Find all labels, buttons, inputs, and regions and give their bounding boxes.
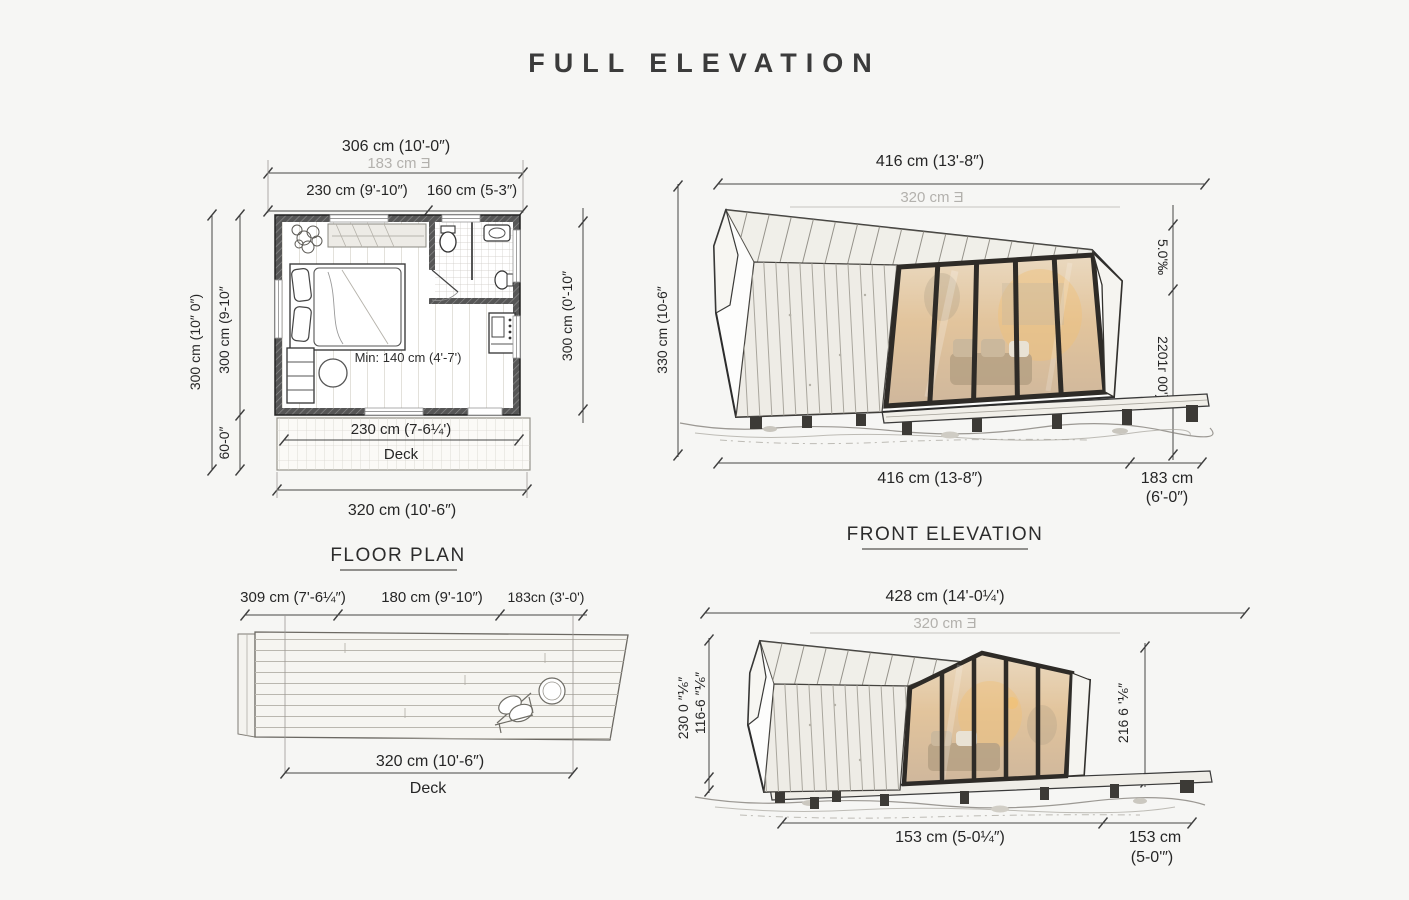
floorplan-dim-right: 300 cm (0'-10″ bbox=[559, 271, 575, 361]
floor-plan-body: Min: 140 cm (4'-7') bbox=[275, 215, 520, 415]
floorplan-deck-label: Deck bbox=[384, 446, 419, 463]
bidet-icon bbox=[495, 271, 513, 289]
floorplan-dim-top-right: 160 cm (5-3″) bbox=[427, 182, 517, 199]
deckplan-dim-top-left: 309 cm (7'-6¼″) bbox=[240, 589, 346, 606]
floorplan-dim-left-outer: 300 cm (10″ 0″) bbox=[187, 294, 203, 390]
deck-plan-drawing: 309 cm (7'-6¼″) 180 cm (9'-10″) 183cn (3… bbox=[225, 585, 645, 810]
side-dim-left-inner: 116-6 ″⅙″ bbox=[692, 672, 708, 734]
front-elevation-drawing: 416 cm (13'-8″) 320 cm Ǝ 330 cm (10-6″ 5… bbox=[650, 145, 1220, 565]
front-dim-left: 330 cm (10-6″ bbox=[654, 286, 670, 373]
side-dim-bottom-right-2: (5-0'″) bbox=[1131, 849, 1174, 866]
glass-wall bbox=[886, 255, 1105, 406]
front-dim-bottom-right-2: (6'-0″) bbox=[1146, 489, 1189, 506]
floor-plan-label: FLOOR PLAN bbox=[330, 545, 465, 566]
floorplan-dim-left-inner: 300 cm (9-10″ bbox=[216, 286, 232, 373]
counter bbox=[328, 224, 426, 247]
toilet-icon bbox=[440, 226, 456, 252]
floorplan-dim-top-total: 306 cm (10'-0″) bbox=[342, 138, 450, 155]
side-dim-bottom-main: 153 cm (5-0¼″) bbox=[895, 829, 1005, 846]
front-dim-top-alt: 320 cm Ǝ bbox=[900, 189, 963, 206]
floorplan-dim-bottom: 320 cm (10'-6″) bbox=[348, 502, 456, 519]
floor-plan-drawing: 306 cm (10'-0″) 183 cm Ǝ 230 cm (9'-10″)… bbox=[180, 130, 620, 590]
side-dim-top-total: 428 cm (14'-0¼') bbox=[885, 588, 1004, 605]
floor-plan-deck: 230 cm (7-6¼') Deck bbox=[277, 418, 530, 470]
deckplan-dim-bottom: 320 cm (10'-6″) bbox=[376, 753, 484, 770]
deckplan-dim-top-right: 183cn (3'-0') bbox=[508, 589, 585, 605]
front-dim-right-upper: 5.0'‰ bbox=[1155, 239, 1171, 275]
floorplan-min-note: Min: 140 cm (4'-7') bbox=[355, 350, 462, 365]
cabinet bbox=[287, 348, 314, 403]
floorplan-dim-top-left: 230 cm (9'-10″) bbox=[306, 182, 408, 199]
side-dim-top-alt: 320 cm Ǝ bbox=[913, 615, 976, 632]
bed bbox=[290, 264, 405, 350]
floorplan-dim-top-alt: 183 cm Ǝ bbox=[367, 155, 430, 172]
front-dim-top-total: 416 cm (13'-8″) bbox=[876, 153, 984, 170]
side-dim-bottom-right-1: 153 cm bbox=[1129, 829, 1181, 846]
front-cabin bbox=[714, 210, 1122, 429]
front-elevation-label: FRONT ELEVATION bbox=[847, 524, 1044, 545]
front-dim-right-lower: 2201г 00')) bbox=[1155, 336, 1171, 404]
kitchen-unit bbox=[489, 313, 515, 353]
side-cabin bbox=[748, 641, 1090, 803]
table-icon bbox=[319, 359, 347, 387]
sink-icon bbox=[484, 225, 510, 241]
front-dim-bottom-right-1: 183 cm bbox=[1141, 470, 1193, 487]
floorplan-dim-left-lower: 60-0″ bbox=[216, 426, 232, 459]
deckplan-dim-top-mid: 180 cm (9'-10″) bbox=[381, 589, 483, 606]
floorplan-dim-deck: 230 cm (7-6¼') bbox=[351, 421, 451, 438]
front-dim-bottom-main: 416 cm (13-8″) bbox=[877, 470, 982, 487]
page-title: FULL ELEVATION bbox=[0, 48, 1409, 79]
deck-plan-body bbox=[238, 615, 628, 773]
side-elevation-drawing: 428 cm (14'-0¼') 320 cm Ǝ 230 0 ″⅙″ 116-… bbox=[660, 585, 1250, 885]
side-table-icon bbox=[539, 678, 565, 704]
deckplan-deck-label: Deck bbox=[410, 780, 447, 797]
side-dim-left-outer: 230 0 ″⅙″ bbox=[675, 677, 691, 739]
side-dim-right: 216 6 '⅙″ bbox=[1115, 683, 1131, 743]
